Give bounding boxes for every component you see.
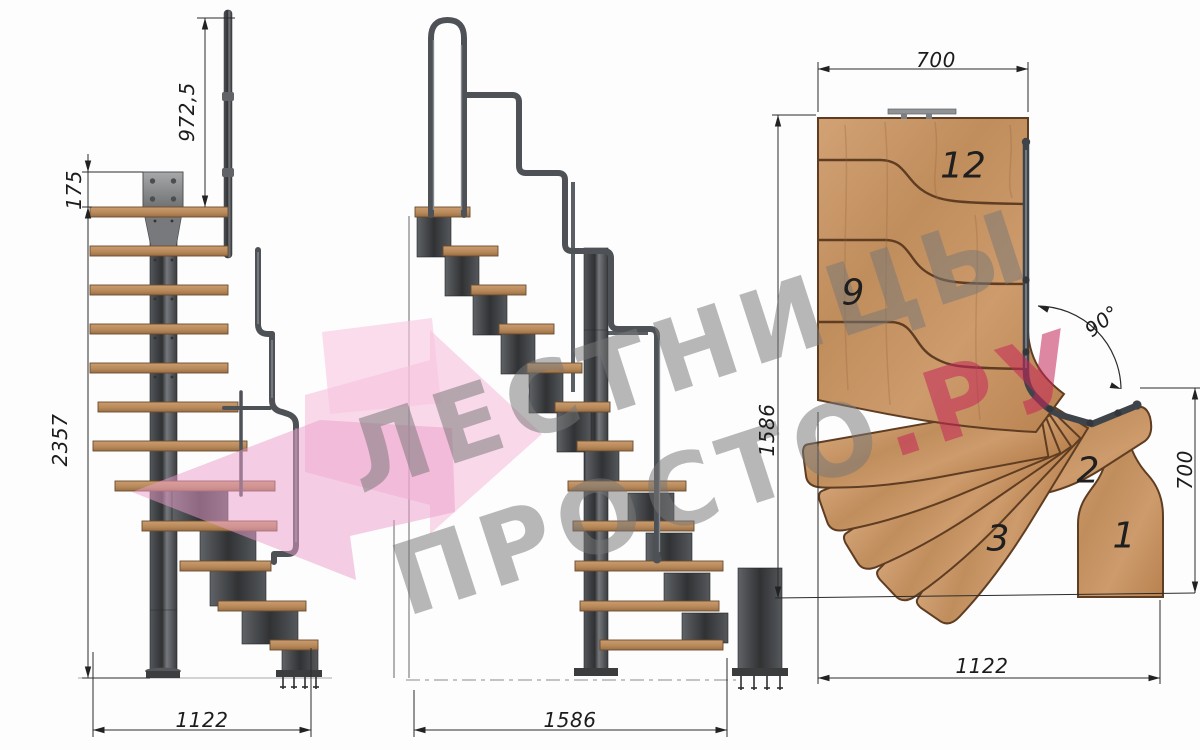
dim-total-height: 2357 [48, 414, 72, 467]
step-label-1: 1 [1113, 516, 1136, 557]
step-label-12: 12 [940, 146, 986, 187]
dim-plan-top-width: 700 [916, 48, 956, 72]
step-label-2: 2 [1077, 451, 1100, 492]
dim-plan-exit-width: 700 [1173, 450, 1197, 490]
side-handrail-post [222, 10, 234, 258]
plan-winder-treads [801, 399, 1089, 634]
side-center-column [150, 208, 177, 672]
step-label-9: 9 [842, 273, 865, 314]
dim-plan-length: 1586 [755, 404, 779, 457]
side-mount-plate [143, 172, 183, 208]
dim-top-plate-offset: 175 [62, 170, 86, 210]
staircase-drawing-page: ЛЕСТНИЦЫ ПРОСТО.РУ 972,5 175 2357 1122 1… [0, 0, 1200, 750]
front-anchor-bolts [738, 676, 783, 690]
dim-front-length: 1586 [544, 708, 597, 732]
step-label-3: 3 [987, 519, 1010, 560]
plan-view [801, 109, 1163, 634]
side-treads [90, 207, 318, 650]
anchor-bolts [280, 677, 319, 689]
dim-plan-bottom-width: 1122 [956, 654, 1009, 678]
dim-side-width: 1122 [176, 708, 229, 732]
dim-handrail-height: 972,5 [175, 82, 199, 142]
